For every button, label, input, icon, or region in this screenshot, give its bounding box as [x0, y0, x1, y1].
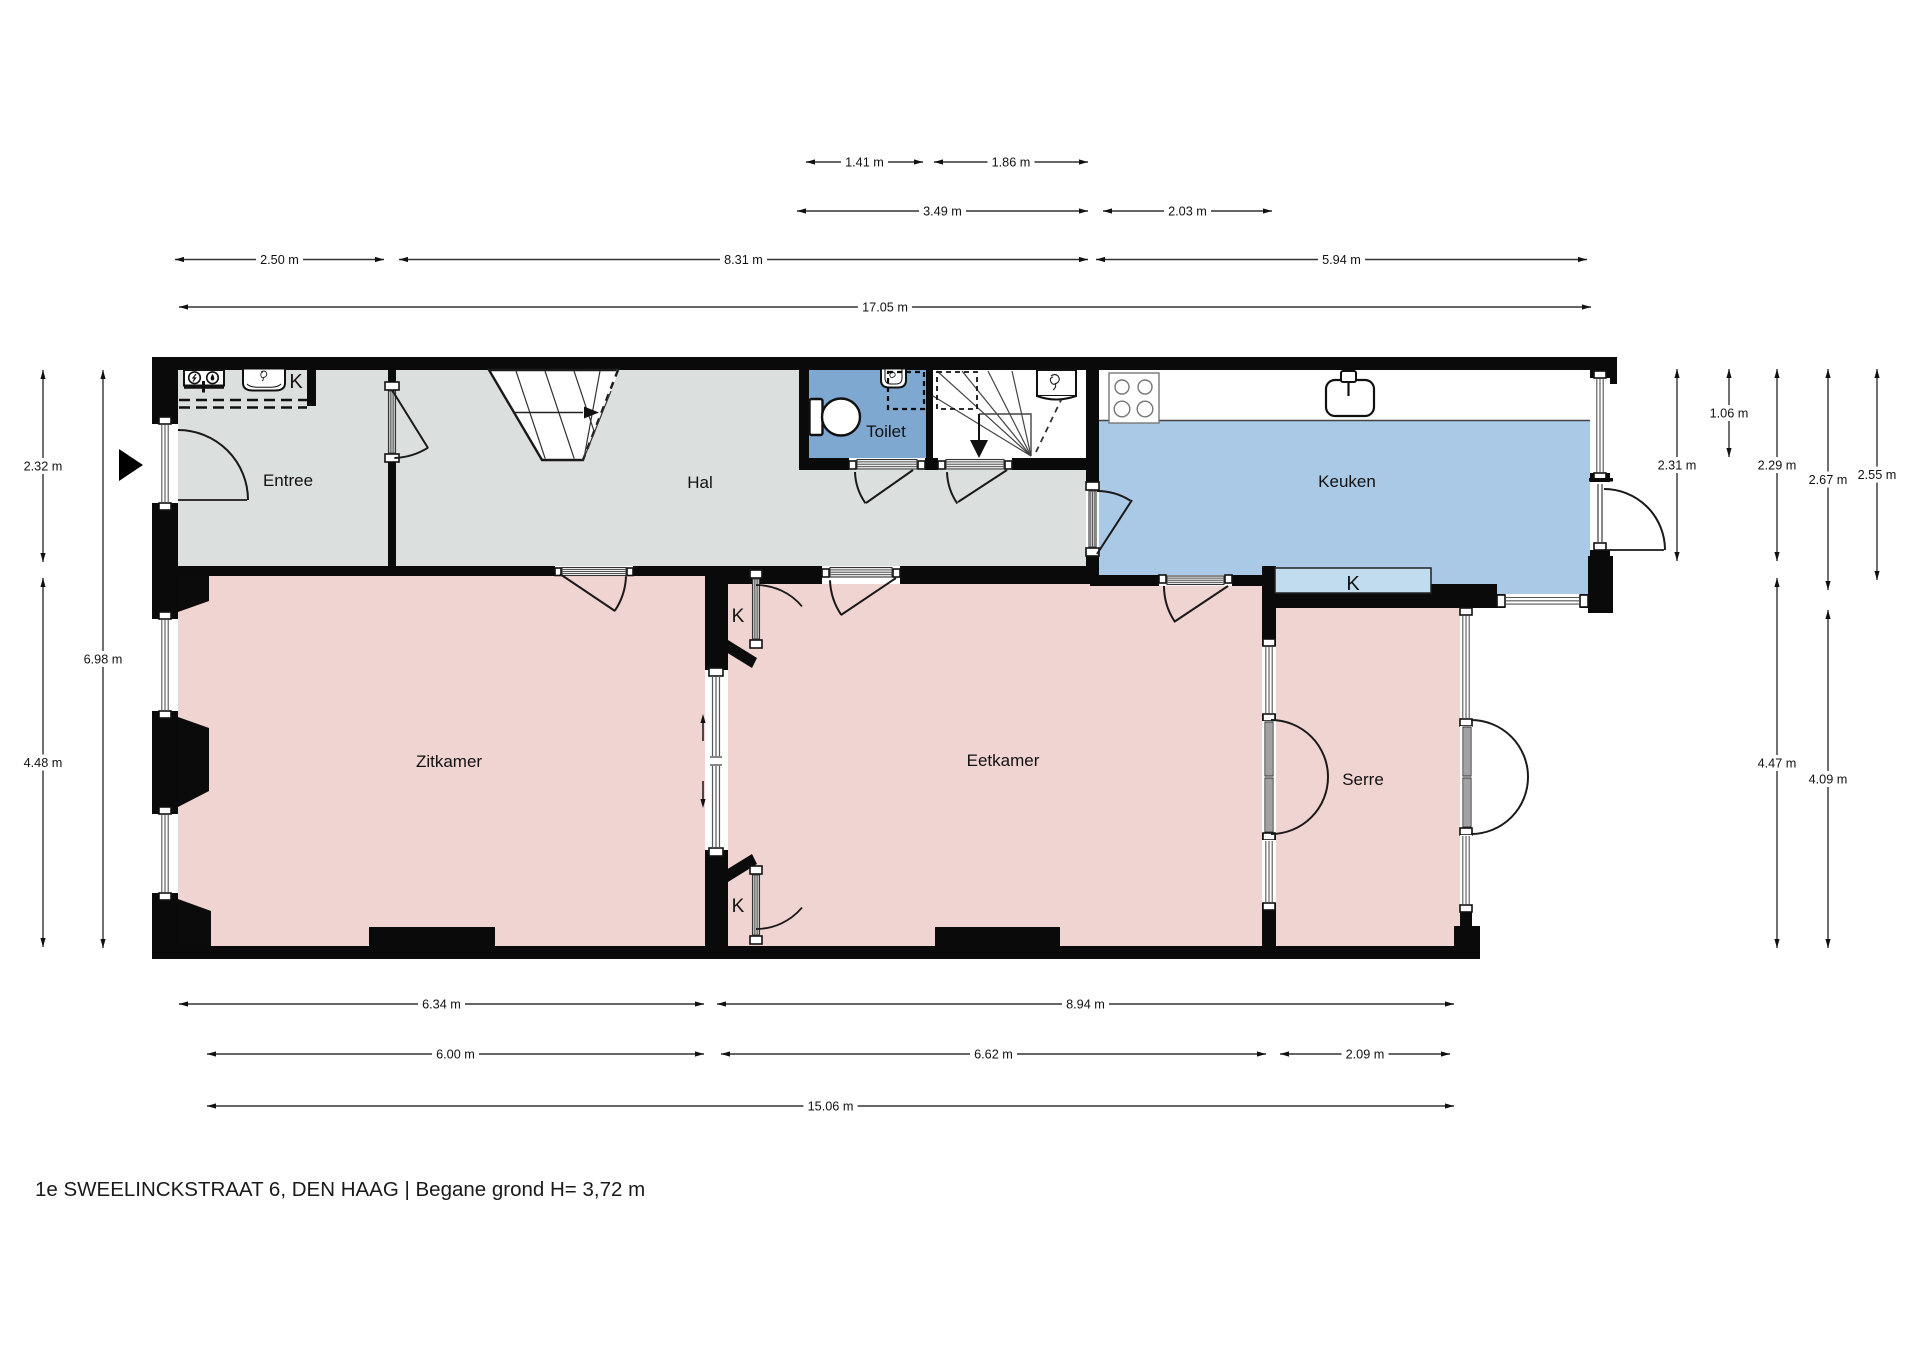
- svg-text:8.94 m: 8.94 m: [1066, 997, 1105, 1011]
- svg-text:15.06 m: 15.06 m: [808, 1099, 854, 1113]
- svg-text:1.86 m: 1.86 m: [992, 155, 1031, 169]
- svg-text:6.34 m: 6.34 m: [422, 997, 461, 1011]
- svg-text:Keuken: Keuken: [1318, 472, 1376, 491]
- svg-text:2.03 m: 2.03 m: [1168, 204, 1207, 218]
- svg-text:4.09 m: 4.09 m: [1809, 772, 1848, 786]
- svg-text:K: K: [289, 371, 303, 393]
- svg-text:4.47 m: 4.47 m: [1758, 756, 1797, 770]
- svg-text:K: K: [1346, 573, 1360, 595]
- svg-text:3.49 m: 3.49 m: [923, 204, 962, 218]
- svg-text:2.32 m: 2.32 m: [24, 459, 63, 473]
- svg-text:1e SWEELINCKSTRAAT 6, DEN HAAG: 1e SWEELINCKSTRAAT 6, DEN HAAG | Begane …: [35, 1178, 645, 1201]
- svg-text:Toilet: Toilet: [866, 422, 906, 441]
- svg-text:5.94 m: 5.94 m: [1322, 253, 1361, 267]
- svg-text:1.41 m: 1.41 m: [845, 155, 884, 169]
- svg-text:Hal: Hal: [687, 473, 713, 492]
- svg-text:2.67 m: 2.67 m: [1809, 473, 1848, 487]
- svg-text:K: K: [732, 606, 745, 627]
- svg-text:K: K: [732, 896, 745, 917]
- svg-text:Zitkamer: Zitkamer: [416, 752, 482, 771]
- svg-text:2.31 m: 2.31 m: [1658, 458, 1697, 472]
- svg-text:1.06 m: 1.06 m: [1710, 406, 1749, 420]
- svg-text:8.31 m: 8.31 m: [724, 253, 763, 267]
- svg-text:17.05 m: 17.05 m: [862, 300, 908, 314]
- svg-text:6.62 m: 6.62 m: [974, 1047, 1013, 1061]
- svg-text:6.98 m: 6.98 m: [84, 652, 123, 666]
- svg-text:2.09 m: 2.09 m: [1346, 1047, 1385, 1061]
- svg-text:6.00 m: 6.00 m: [436, 1047, 475, 1061]
- svg-text:2.55 m: 2.55 m: [1858, 468, 1897, 482]
- svg-text:Serre: Serre: [1342, 770, 1384, 789]
- svg-text:Entree: Entree: [263, 471, 313, 490]
- svg-text:4.48 m: 4.48 m: [24, 756, 63, 770]
- svg-text:2.50 m: 2.50 m: [260, 253, 299, 267]
- svg-text:2.29 m: 2.29 m: [1758, 458, 1797, 472]
- svg-text:Eetkamer: Eetkamer: [967, 751, 1040, 770]
